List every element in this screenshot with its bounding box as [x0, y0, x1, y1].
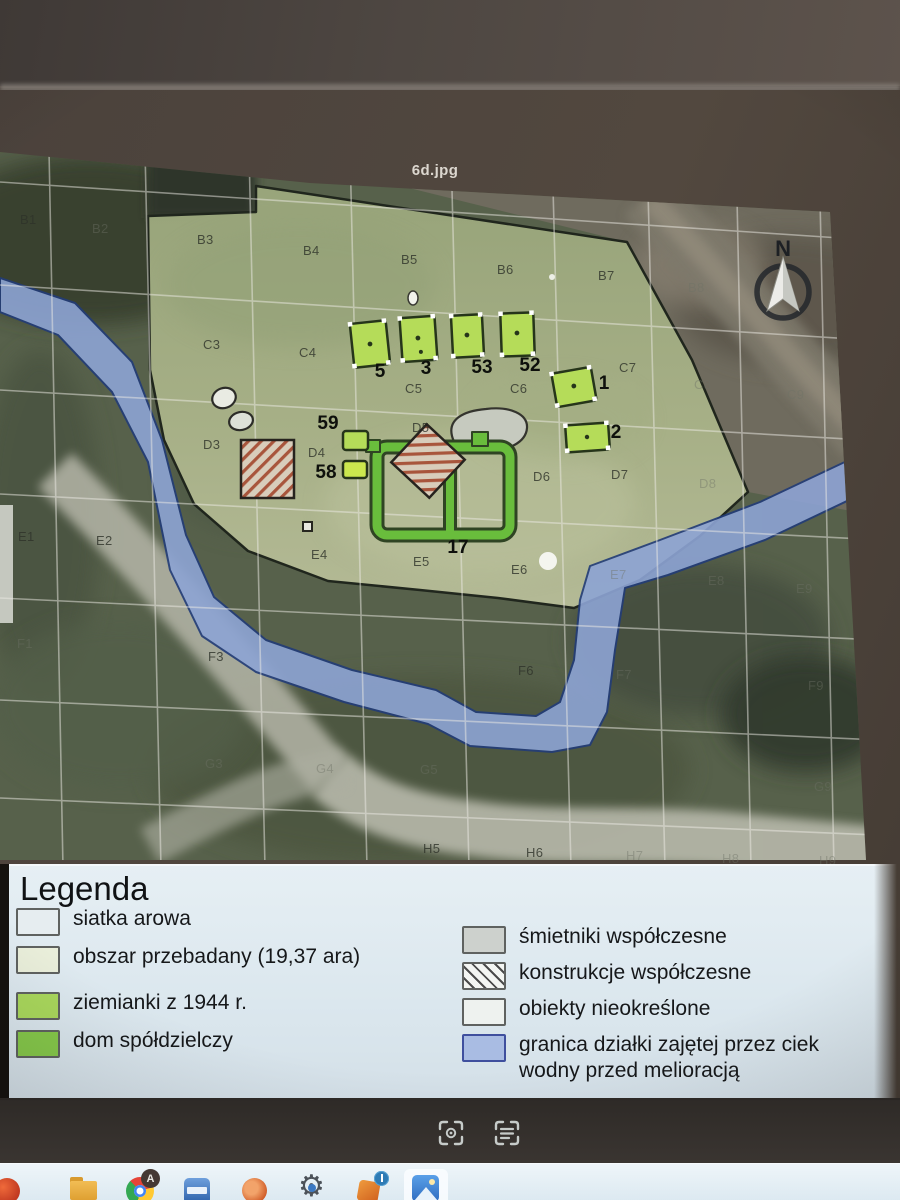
- legend-item-stream: granica działki zajętej przez ciek wodny…: [462, 1032, 874, 1083]
- legend-item-constr: konstrukcje współczesne: [462, 960, 874, 990]
- photos-app-icon[interactable]: [412, 1175, 440, 1200]
- projected-screen-photo: 6d.jpg: [0, 0, 900, 1200]
- legend-item-trash: śmietniki współczesne: [462, 924, 874, 954]
- legend-item-surveyed: obszar przebadany (19,37 ara): [16, 944, 446, 974]
- legend-column-right: śmietniki współczesnekonstrukcje współcz…: [462, 924, 874, 1089]
- visual-search-icon[interactable]: [492, 1118, 522, 1148]
- file-explorer-icon[interactable]: [70, 1175, 98, 1200]
- office-app-icon[interactable]: [242, 1178, 267, 1200]
- legend-label: obiekty nieokreślone: [519, 996, 710, 1022]
- info-badge: [374, 1171, 389, 1186]
- modern-construction-rect: [241, 440, 294, 498]
- legend-swatch-coop: [16, 1030, 60, 1058]
- legend-label: granica działki zajętej przez ciek wodny…: [519, 1032, 874, 1083]
- legend-title: Legenda: [20, 870, 148, 908]
- red-browser-icon[interactable]: [0, 1178, 20, 1200]
- settings-gear-icon[interactable]: ⚙: [298, 1175, 326, 1200]
- legend-item-coop: dom spółdzielczy: [16, 1028, 446, 1058]
- info-badge-app-icon[interactable]: [356, 1175, 384, 1200]
- legend-swatch-stream: [462, 1034, 506, 1062]
- north-label: N: [775, 236, 791, 261]
- legend-label: konstrukcje współczesne: [519, 960, 751, 986]
- legend-swatch-dugout: [16, 992, 60, 1020]
- legend-label: ziemianki z 1944 r.: [73, 990, 247, 1016]
- site-map-image: N: [0, 150, 900, 864]
- legend-item-grid: siatka arowa: [16, 906, 446, 936]
- scan-text-icon[interactable]: [436, 1118, 466, 1148]
- legend-label: obszar przebadany (19,37 ara): [73, 944, 360, 970]
- legend-label: śmietniki współczesne: [519, 924, 727, 950]
- chrome-browser-icon[interactable]: A: [126, 1177, 154, 1200]
- legend-column-left: siatka arowaobszar przebadany (19,37 ara…: [16, 906, 446, 1066]
- legend-swatch-undef: [462, 998, 506, 1026]
- legend-swatch-grid: [16, 908, 60, 936]
- legend-item-undef: obiekty nieokreślone: [462, 996, 874, 1026]
- legend-panel: Legenda siatka arowaobszar przebadany (1…: [0, 864, 900, 1098]
- photos-icon: [412, 1175, 439, 1200]
- viewer-toolbar: [0, 1098, 900, 1163]
- legend-swatch-surveyed: [16, 946, 60, 974]
- legend-swatch-trash: [462, 926, 506, 954]
- legend-label: siatka arowa: [73, 906, 191, 932]
- windows-taskbar: A ⚙: [0, 1163, 900, 1200]
- legend-item-dugout: ziemianki z 1944 r.: [16, 990, 446, 1020]
- profile-avatar-badge: A: [141, 1169, 160, 1188]
- wall-background: [0, 0, 900, 86]
- legend-swatch-constr: [462, 962, 506, 990]
- legend-label: dom spółdzielczy: [73, 1028, 233, 1054]
- blue-app-icon[interactable]: [184, 1178, 210, 1200]
